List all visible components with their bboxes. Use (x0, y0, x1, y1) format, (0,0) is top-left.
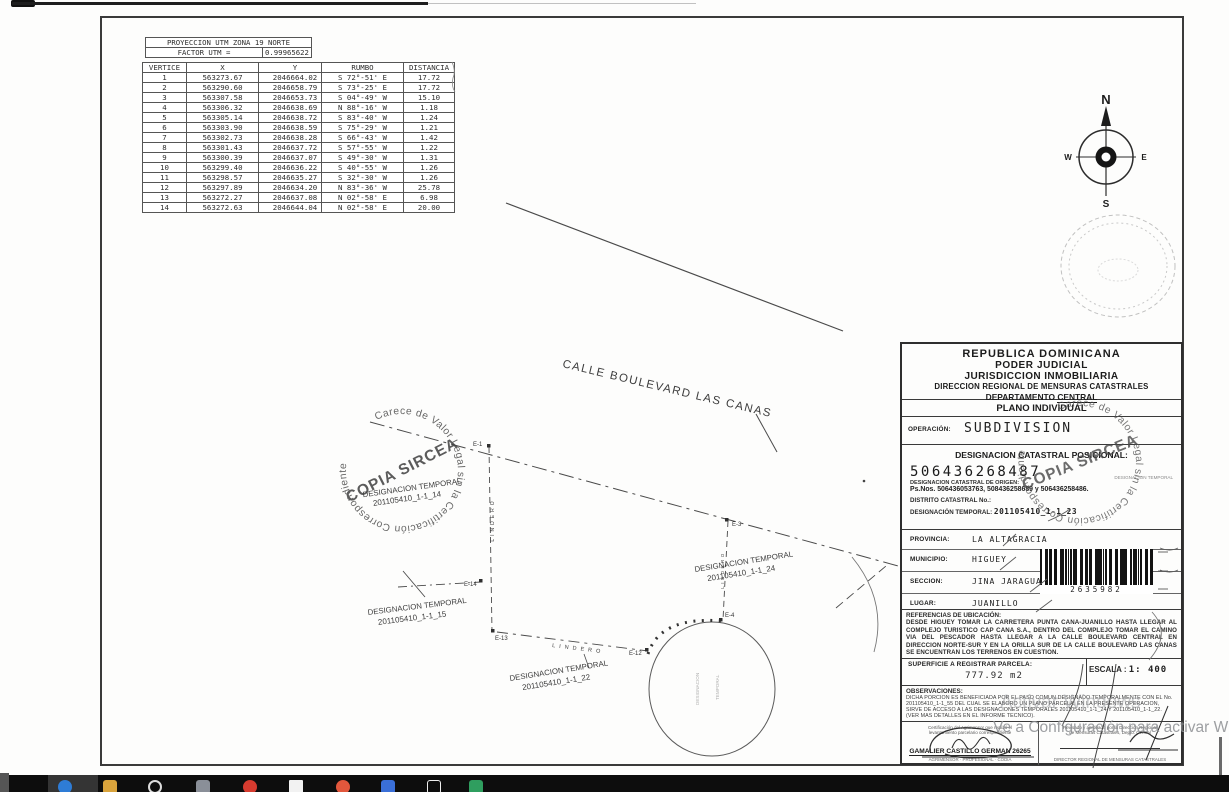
table-cell: 563290.60 (187, 83, 259, 93)
surveyor-subtitle: AGRIMENSOR · PROFESIONAL · CODIA (902, 757, 1038, 762)
surveyor-name-text: GAMALIER CASTILLO GERMAN 26265 (909, 748, 1030, 756)
table-cell: 563298.57 (187, 173, 259, 183)
table-row: N 83°-36' W25.78 (322, 183, 455, 193)
district-label: DISTRITO CATASTRAL No.: (910, 497, 991, 504)
country-title: REPUBLICA DOMINICANA (902, 348, 1181, 360)
table-head: RUMBO DISTANCIA (322, 63, 455, 73)
references-row: REFERENCIAS DE UBICACIÓN: DESDE HIGUEY T… (902, 610, 1181, 659)
table-row: S 57°-55' W1.22 (322, 143, 455, 153)
province-value: LA ALTAGRACIA (972, 535, 1048, 544)
table-row: FACTOR UTM = 0.99965622 (146, 48, 312, 58)
plan-type-row: PLANO INDIVIDUAL (902, 400, 1181, 417)
place-value: JUANILLO (972, 599, 1019, 608)
table-body: S 72°-51' E17.72S 73°-25' E17.72S 04°-49… (322, 73, 455, 213)
table-cell: S 32°-30' W (322, 173, 404, 183)
col-header: RUMBO (322, 63, 404, 73)
page-edge-mark (1219, 737, 1222, 775)
table-row: 7563302.732046638.28 (143, 133, 332, 143)
title-block-header: REPUBLICA DOMINICANA PODER JUDICIAL JURI… (902, 344, 1181, 400)
table-cell: S 49°-30' W (322, 153, 404, 163)
place-label: LUGAR: (910, 600, 936, 607)
small-right-note: DESIGNACION TEMPORAL (1114, 475, 1173, 480)
operation-row: OPERACIÓN: SUBDIVISION (902, 417, 1181, 445)
table-cell: S 57°-55' W (322, 143, 404, 153)
references-text: DESDE HIGUEY TOMAR LA CARRETERA PUNTA CA… (906, 619, 1177, 657)
table-cell: 5 (143, 113, 187, 123)
table-row: S 66°-43' W1.42 (322, 133, 455, 143)
scale-cell: ESCALA : 1: 400 (1089, 665, 1167, 675)
taskbar (0, 775, 1229, 792)
table-row: 9563300.392046637.07 (143, 153, 332, 163)
province-label: PROVINCIA: (910, 536, 950, 543)
table-row: S 72°-51' E17.72 (322, 73, 455, 83)
table-row: 10563299.402046636.22 (143, 163, 332, 173)
taskbar-active-highlight (48, 775, 98, 792)
table-body: 1563273.672046664.022563290.602046658.79… (143, 73, 332, 213)
area-label: SUPERFICIE A REGISTRAR PARCELA: (908, 661, 1032, 668)
powerpoint-orange-icon[interactable] (336, 780, 350, 792)
operation-value: SUBDIVISION (964, 421, 1072, 436)
table-cell: 563306.32 (187, 103, 259, 113)
table-cell: 1.21 (404, 123, 455, 133)
table-cell: 1.22 (404, 143, 455, 153)
table-cell: 563303.90 (187, 123, 259, 133)
table-cell: 15.10 (404, 93, 455, 103)
barcode-number: 2635982 (1040, 585, 1153, 594)
temporal-line: DESIGNACIÓN TEMPORAL: 201105410_1-1_23 (910, 507, 1077, 516)
table-cell: N 02°-58' E (322, 193, 404, 203)
projection-table: PROYECCION UTM ZONA 19 NORTE FACTOR UTM … (145, 37, 312, 58)
table-cell: 10 (143, 163, 187, 173)
table-cell: 6 (143, 123, 187, 133)
table-row: 11563298.572046635.27 (143, 173, 332, 183)
table-cell: S 72°-51' E (322, 73, 404, 83)
table-row: 5563305.142046638.72 (143, 113, 332, 123)
table-cell: S 04°-49' W (322, 93, 404, 103)
scan-artifact-line (12, 2, 428, 5)
col-header: DISTANCIA (404, 63, 455, 73)
col-header: VERTICE (143, 63, 187, 73)
scan-artifact-line-faint (428, 3, 696, 4)
table-cell: 2 (143, 83, 187, 93)
table-cell: 1.26 (404, 163, 455, 173)
table-cell: S 66°-43' W (322, 133, 404, 143)
scale-label: ESCALA : (1089, 665, 1126, 674)
table-head: VERTICE X Y (143, 63, 332, 73)
table-cell: 1.18 (404, 103, 455, 113)
table-row: S 04°-49' W15.10 (322, 93, 455, 103)
desktop-screen: PROYECCION UTM ZONA 19 NORTE FACTOR UTM … (0, 0, 1229, 792)
table-cell: 1 (143, 73, 187, 83)
province-row: PROVINCIA: LA ALTAGRACIA (902, 530, 1181, 550)
windows-activation-watermark-line2: Ve a Configuración para activar Wi (993, 719, 1229, 737)
operation-label: OPERACIÓN: (908, 426, 951, 433)
area-cell: SUPERFICIE A REGISTRAR PARCELA: 777.92 m… (902, 659, 1087, 685)
col-header: X (187, 63, 259, 73)
table-row: RUMBO DISTANCIA (322, 63, 455, 73)
factor-label: FACTOR UTM = (146, 48, 263, 58)
table-cell: S 40°-55' W (322, 163, 404, 173)
table-row: 3563307.582046653.73 (143, 93, 332, 103)
table-cell: S 73°-25' E (322, 83, 404, 93)
cortana-ring-icon[interactable] (148, 780, 162, 792)
catastral-heading: DESIGNACION CATASTRAL POSICIONAL: (902, 445, 1181, 463)
area-scale-row: SUPERFICIE A REGISTRAR PARCELA: 777.92 m… (902, 659, 1181, 686)
edge-icon[interactable] (58, 780, 72, 792)
table-cell: 563299.40 (187, 163, 259, 173)
surveyor-name: GAMALIER CASTILLO GERMAN 26265 (902, 748, 1038, 755)
table-cell: 563301.43 (187, 143, 259, 153)
table-cell: 1.26 (404, 173, 455, 183)
origin-value: Ps.Nos. 506436053763, 508436258689 y 506… (910, 486, 1089, 493)
section-label: SECCION: (910, 578, 943, 585)
windows-activation-watermark-line1: Activar Windows (1000, 692, 1140, 714)
table-cell: N 83°-36' W (322, 183, 404, 193)
table-cell: 17.72 (404, 83, 455, 93)
table-row: N 02°-58' E20.00 (322, 203, 455, 213)
table-cell: 563272.63 (187, 203, 259, 213)
table-cell: 14 (143, 203, 187, 213)
table-row: S 75°-29' W1.21 (322, 123, 455, 133)
place-row: LUGAR: JUANILLO (902, 594, 1181, 610)
section-value: JINA JARAGUA (972, 577, 1042, 586)
municipality-value: HIGUEY (972, 555, 1007, 564)
barcode: 2635982 (1040, 549, 1153, 594)
table-cell: 6.98 (404, 193, 455, 203)
municipality-label: MUNICIPIO: (910, 556, 948, 563)
projection-title: PROYECCION UTM ZONA 19 NORTE (146, 38, 312, 48)
table-cell: 7 (143, 133, 187, 143)
table-row: 4563306.322046638.69 (143, 103, 332, 113)
excel-green-icon[interactable] (469, 780, 483, 792)
bearing-table: RUMBO DISTANCIA S 72°-51' E17.72S 73°-25… (321, 62, 455, 213)
table-cell: 9 (143, 153, 187, 163)
folder-icon[interactable] (103, 780, 117, 792)
table-row: N 02°-58' E6.98 (322, 193, 455, 203)
table-cell: 563307.58 (187, 93, 259, 103)
table-cell: 563273.67 (187, 73, 259, 83)
table-cell: 1.24 (404, 113, 455, 123)
table-cell: 563302.73 (187, 133, 259, 143)
taskbar-left-strip (0, 773, 9, 792)
direction-title: DIRECCION REGIONAL DE MENSURAS CATASTRAL… (902, 382, 1181, 392)
vertex-table: VERTICE X Y 1563273.672046664.022563290.… (142, 62, 332, 213)
catastral-numbers: 506436268487 DESIGNACION TEMPORAL DESIGN… (902, 463, 1181, 530)
table-row: S 73°-25' E17.72 (322, 83, 455, 93)
table-cell: 563300.39 (187, 153, 259, 163)
table-row: S 32°-30' W1.26 (322, 173, 455, 183)
table-cell: 25.78 (404, 183, 455, 193)
table-row: 13563272.272046637.08 (143, 193, 332, 203)
area-value: 777.92 m2 (902, 671, 1086, 681)
table-row: 8563301.432046637.72 (143, 143, 332, 153)
table-cell: N 02°-58' E (322, 203, 404, 213)
excel-blue-tile-icon[interactable] (381, 780, 395, 792)
table-cell: N 88°-16' W (322, 103, 404, 113)
table-row: S 40°-55' W1.26 (322, 163, 455, 173)
signature-underline (1060, 748, 1159, 749)
table-cell: 3 (143, 93, 187, 103)
table-cell: 4 (143, 103, 187, 113)
temporal-value: 201105410_1-1_23 (994, 507, 1077, 516)
table-row: 12563297.892046634.20 (143, 183, 332, 193)
app-grey-icon[interactable] (196, 780, 210, 792)
table-cell: 13 (143, 193, 187, 203)
factor-value: 0.99965622 (263, 48, 312, 58)
table-cell: S 75°-29' W (322, 123, 404, 133)
table-cell: 8 (143, 143, 187, 153)
positional-number: 506436268487 (910, 464, 1041, 480)
table-cell: 12 (143, 183, 187, 193)
table-cell: S 83°-40' W (322, 113, 404, 123)
table-row: 2563290.602046658.79 (143, 83, 332, 93)
table-cell: 1.31 (404, 153, 455, 163)
table-row: 14563272.632046644.04 (143, 203, 332, 213)
table-cell: 11 (143, 173, 187, 183)
table-cell: 1.42 (404, 133, 455, 143)
table-row: 1563273.672046664.02 (143, 73, 332, 83)
scale-value: 1: 400 (1129, 665, 1168, 675)
table-cell: 563305.14 (187, 113, 259, 123)
references-label: REFERENCIAS DE UBICACIÓN: (906, 612, 1177, 619)
table-cell: 17.72 (404, 73, 455, 83)
table-cell: 20.00 (404, 203, 455, 213)
judicial-title: PODER JUDICIAL (902, 360, 1181, 371)
official-subtitle: DIRECTOR REGIONAL DE MENSURAS CATASTRALE… (1039, 757, 1181, 762)
table-cell: 563297.89 (187, 183, 259, 193)
chrome-red-icon[interactable] (243, 780, 257, 792)
document-icon[interactable] (289, 780, 303, 792)
table-row: 6563303.902046638.59 (143, 123, 332, 133)
table-row: N 88°-16' W1.18 (322, 103, 455, 113)
table-row: PROYECCION UTM ZONA 19 NORTE (146, 38, 312, 48)
window-outline-icon[interactable] (427, 780, 441, 792)
temporal-label: DESIGNACIÓN TEMPORAL: (910, 509, 992, 516)
table-cell: 563272.27 (187, 193, 259, 203)
table-row: S 83°-40' W1.24 (322, 113, 455, 123)
jurisdiction-title: JURISDICCION INMOBILIARIA (902, 371, 1181, 382)
table-row: S 49°-30' W1.31 (322, 153, 455, 163)
table-row: VERTICE X Y (143, 63, 332, 73)
